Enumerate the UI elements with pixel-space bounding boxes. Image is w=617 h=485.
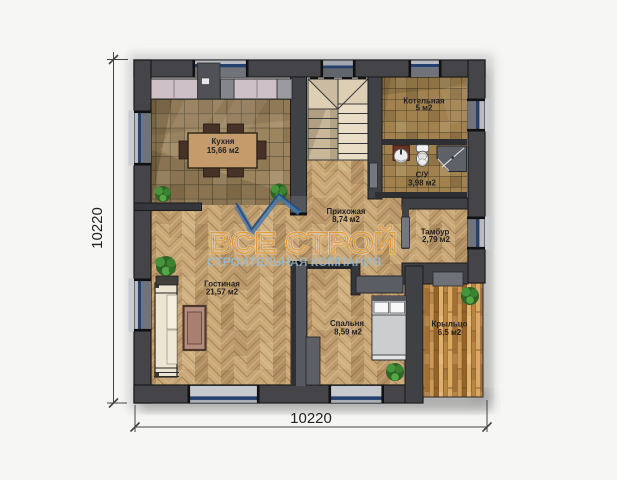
svg-text:5 м2: 5 м2 [416, 104, 433, 113]
svg-text:21,57 м2: 21,57 м2 [206, 288, 239, 297]
svg-text:10220: 10220 [290, 410, 332, 427]
svg-text:6,5 м2: 6,5 м2 [438, 328, 462, 337]
svg-text:Кухня: Кухня [211, 137, 234, 146]
svg-text:15,66 м2: 15,66 м2 [207, 146, 240, 155]
svg-text:8,74 м2: 8,74 м2 [332, 215, 360, 224]
svg-text:СТРОИТЕЛЬНАЯ КОМПАНИЯ: СТРОИТЕЛЬНАЯ КОМПАНИЯ [207, 257, 381, 269]
svg-text:ВСЕ СТРОЙ: ВСЕ СТРОЙ [209, 226, 397, 260]
svg-text:3,98 м2: 3,98 м2 [408, 179, 436, 188]
svg-text:10220: 10220 [89, 207, 106, 249]
svg-text:8,59 м2: 8,59 м2 [334, 328, 362, 337]
svg-text:2,79 м2: 2,79 м2 [422, 235, 450, 244]
